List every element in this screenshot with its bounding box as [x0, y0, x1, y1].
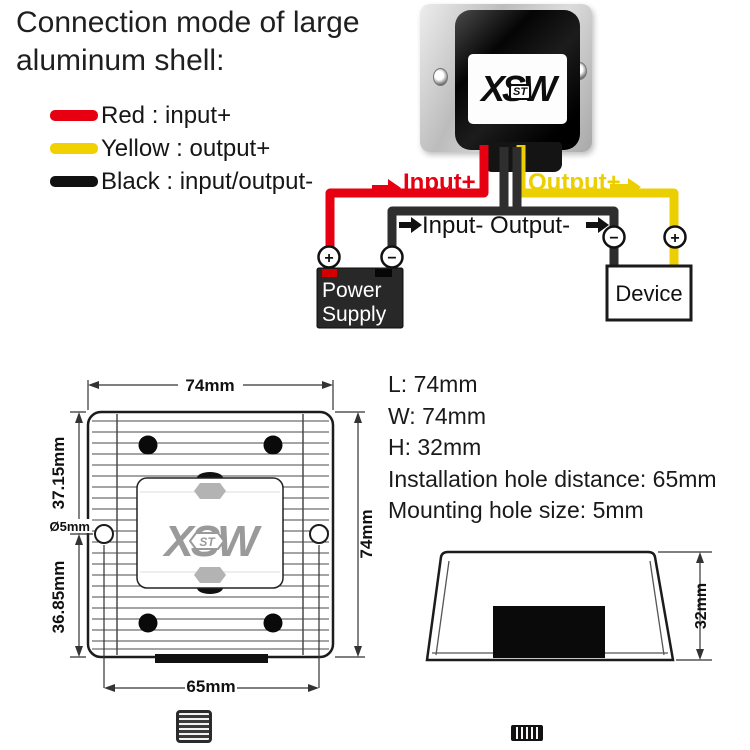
flange-hole-left-icon: [433, 68, 448, 86]
input-plus-label: Input+: [403, 169, 476, 196]
spec-height: H: 32mm: [388, 432, 717, 464]
minus-symbol: −: [387, 250, 396, 267]
page-title: Connection mode of large aluminum shell:: [16, 4, 360, 80]
yellow-wire-swatch-icon: [50, 143, 98, 154]
black-common-wires: [392, 147, 614, 270]
dim-hole-label: Ø5mm: [50, 519, 90, 534]
power-supply-minus-terminal: −: [382, 247, 403, 268]
power-supply-plus-tab: [322, 269, 337, 277]
wiring-diagram: Input+ Output+ Input- Output- Power Supp…: [300, 130, 720, 340]
dim-lower-left-label: 36.85mm: [49, 561, 68, 634]
legend-row-yellow: Yellow : output+: [50, 132, 313, 165]
screw-top-right-icon: [264, 436, 283, 455]
thumbnail-top-view-icon: [176, 710, 212, 743]
bottom-hex-icon: [194, 567, 226, 583]
output-plus-label: Output+: [528, 169, 621, 196]
bottom-bar: [155, 654, 268, 663]
device-box: Device: [607, 266, 691, 320]
screw-top-left-icon: [139, 436, 158, 455]
wire-color-legend: Red : input+ Yellow : output+ Black : in…: [50, 99, 313, 198]
legend-label-yellow: Yellow : output+: [101, 135, 270, 163]
power-supply-box: Power Supply: [317, 268, 403, 328]
power-supply-plus-terminal: +: [319, 247, 340, 268]
legend-row-black: Black : input/output-: [50, 165, 313, 198]
power-supply-minus-tab: [375, 269, 392, 277]
screw-bottom-right-icon: [264, 614, 283, 633]
dimension-specs: L: 74mm W: 74mm H: 32mm Installation hol…: [388, 369, 717, 527]
plus-symbol: +: [670, 230, 679, 247]
input-output-minus-label: Input- Output-: [422, 212, 570, 239]
minus-symbol: −: [609, 230, 618, 247]
red-wire-swatch-icon: [50, 110, 98, 121]
legend-row-red: Red : input+: [50, 99, 313, 132]
brand-label: XSW ST: [468, 54, 567, 124]
thumbnail-side-view-icon: [511, 725, 543, 741]
legend-label-black: Black : input/output-: [101, 168, 313, 196]
top-view-drawing: XSW ST 74mm 37.15mm 36.85mm Ø5mm 74mm 65…: [40, 365, 385, 705]
side-base-block: [493, 606, 605, 658]
device-label: Device: [615, 281, 682, 306]
top-hex-icon: [194, 483, 226, 499]
power-supply-label-line2: Supply: [322, 303, 387, 326]
mounting-hole-right: [310, 525, 328, 543]
dim-top-label: 74mm: [185, 376, 234, 395]
spec-length: L: 74mm: [388, 369, 717, 401]
page-title-line2: aluminum shell:: [16, 42, 360, 80]
device-plus-terminal: +: [665, 227, 686, 248]
converter-black-shell: XSW ST: [455, 10, 580, 150]
spec-width: W: 74mm: [388, 401, 717, 433]
dim-upper-left-label: 37.15mm: [49, 437, 68, 510]
side-view-drawing: 32mm: [405, 540, 725, 675]
input-minus-arrow-icon: [399, 217, 422, 233]
page-title-line1: Connection mode of large: [16, 4, 360, 42]
drawing-brand-logo: XSW ST: [161, 517, 262, 566]
device-minus-terminal: −: [604, 227, 625, 248]
screw-bottom-left-icon: [139, 614, 158, 633]
spec-hole-size: Mounting hole size: 5mm: [388, 495, 717, 527]
plus-symbol: +: [324, 250, 333, 267]
mounting-hole-left: [95, 525, 113, 543]
dim-right-label: 74mm: [357, 509, 376, 558]
brand-logo: XSW ST: [481, 68, 554, 110]
drawing-logo-subtext: ST: [199, 535, 216, 549]
dim-bottom-label: 65mm: [186, 677, 235, 696]
spec-hole-distance: Installation hole distance: 65mm: [388, 464, 717, 496]
legend-label-red: Red : input+: [101, 102, 231, 130]
black-wire-swatch-icon: [50, 176, 98, 187]
power-supply-label-line1: Power: [322, 279, 382, 302]
side-height-label: 32mm: [693, 583, 710, 629]
brand-logo-subtext: ST: [509, 84, 531, 100]
